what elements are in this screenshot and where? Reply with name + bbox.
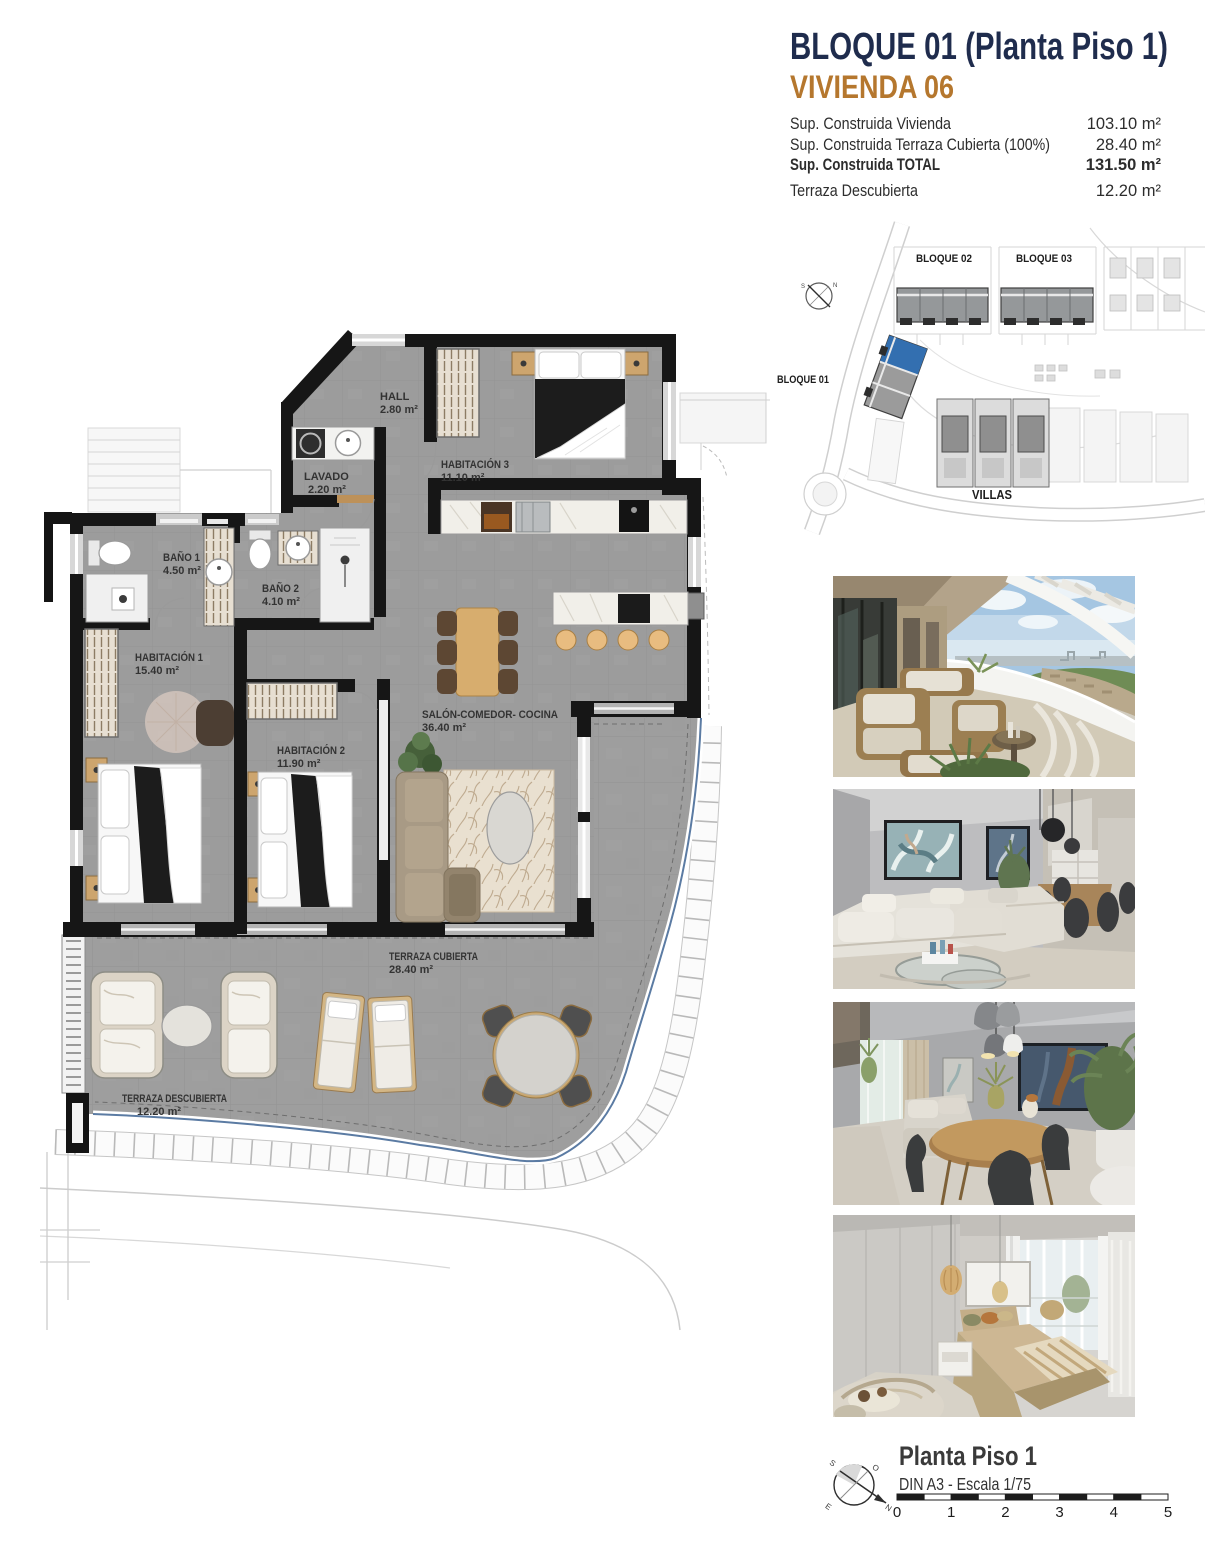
svg-text:12.20 m²: 12.20 m²	[137, 1106, 181, 1118]
svg-text:28.40 m²: 28.40 m²	[389, 964, 433, 976]
svg-text:103.10 m²: 103.10 m²	[1087, 115, 1162, 133]
svg-text:BLOQUE 03: BLOQUE 03	[1016, 253, 1072, 265]
svg-text:TERRAZA CUBIERTA: TERRAZA CUBIERTA	[389, 951, 478, 963]
svg-text:4.50 m²: 4.50 m²	[163, 565, 201, 577]
svg-text:2.80 m²: 2.80 m²	[380, 404, 418, 416]
svg-text:Terraza Descubierta: Terraza Descubierta	[790, 182, 919, 200]
svg-text:Sup. Construida Vivienda: Sup. Construida Vivienda	[790, 115, 952, 133]
svg-text:VIVIENDA 06: VIVIENDA 06	[790, 69, 954, 105]
svg-text:HABITACIÓN 3: HABITACIÓN 3	[441, 458, 509, 471]
svg-text:DIN A3 - Escala 1/75: DIN A3 - Escala 1/75	[899, 1474, 1031, 1494]
svg-text:SALÓN-COMEDOR- COCINA: SALÓN-COMEDOR- COCINA	[422, 708, 558, 721]
svg-text:28.40 m²: 28.40 m²	[1096, 136, 1162, 154]
svg-text:1: 1	[947, 1504, 955, 1521]
svg-text:Planta Piso 1: Planta Piso 1	[899, 1441, 1037, 1471]
svg-text:0: 0	[893, 1504, 901, 1521]
svg-text:11.90 m²: 11.90 m²	[277, 758, 321, 770]
svg-text:5: 5	[1164, 1504, 1172, 1521]
svg-text:N: N	[833, 283, 837, 289]
svg-text:HALL: HALL	[380, 391, 410, 403]
svg-text:4: 4	[1110, 1504, 1118, 1521]
svg-text:2.20 m²: 2.20 m²	[308, 484, 346, 496]
svg-text:HABITACIÓN 1: HABITACIÓN 1	[135, 651, 203, 664]
svg-text:36.40 m²: 36.40 m²	[422, 722, 466, 734]
svg-text:131.50 m²: 131.50 m²	[1086, 156, 1162, 174]
svg-text:BLOQUE 01: BLOQUE 01	[777, 374, 829, 386]
svg-text:Sup. Construida TOTAL: Sup. Construida TOTAL	[790, 156, 940, 174]
svg-text:BAÑO 1: BAÑO 1	[163, 551, 200, 564]
svg-text:3: 3	[1055, 1504, 1063, 1521]
svg-text:Sup. Construida Terraza Cubier: Sup. Construida Terraza Cubierta (100%)	[790, 136, 1050, 154]
svg-text:11.10 m²: 11.10 m²	[441, 472, 485, 484]
svg-text:HABITACIÓN 2: HABITACIÓN 2	[277, 744, 345, 757]
svg-text:LAVADO: LAVADO	[304, 471, 349, 483]
svg-text:12.20 m²: 12.20 m²	[1096, 182, 1162, 200]
svg-text:S: S	[801, 284, 805, 290]
svg-text:4.10 m²: 4.10 m²	[262, 596, 300, 608]
svg-text:15.40 m²: 15.40 m²	[135, 665, 179, 677]
svg-text:VILLAS: VILLAS	[972, 488, 1012, 502]
svg-text:BAÑO 2: BAÑO 2	[262, 582, 299, 595]
svg-text:TERRAZA DESCUBIERTA: TERRAZA DESCUBIERTA	[122, 1093, 227, 1105]
svg-text:BLOQUE 02: BLOQUE 02	[916, 253, 972, 265]
svg-text:BLOQUE 01 (Planta Piso 1): BLOQUE 01 (Planta Piso 1)	[790, 26, 1168, 68]
svg-text:2: 2	[1001, 1504, 1009, 1521]
